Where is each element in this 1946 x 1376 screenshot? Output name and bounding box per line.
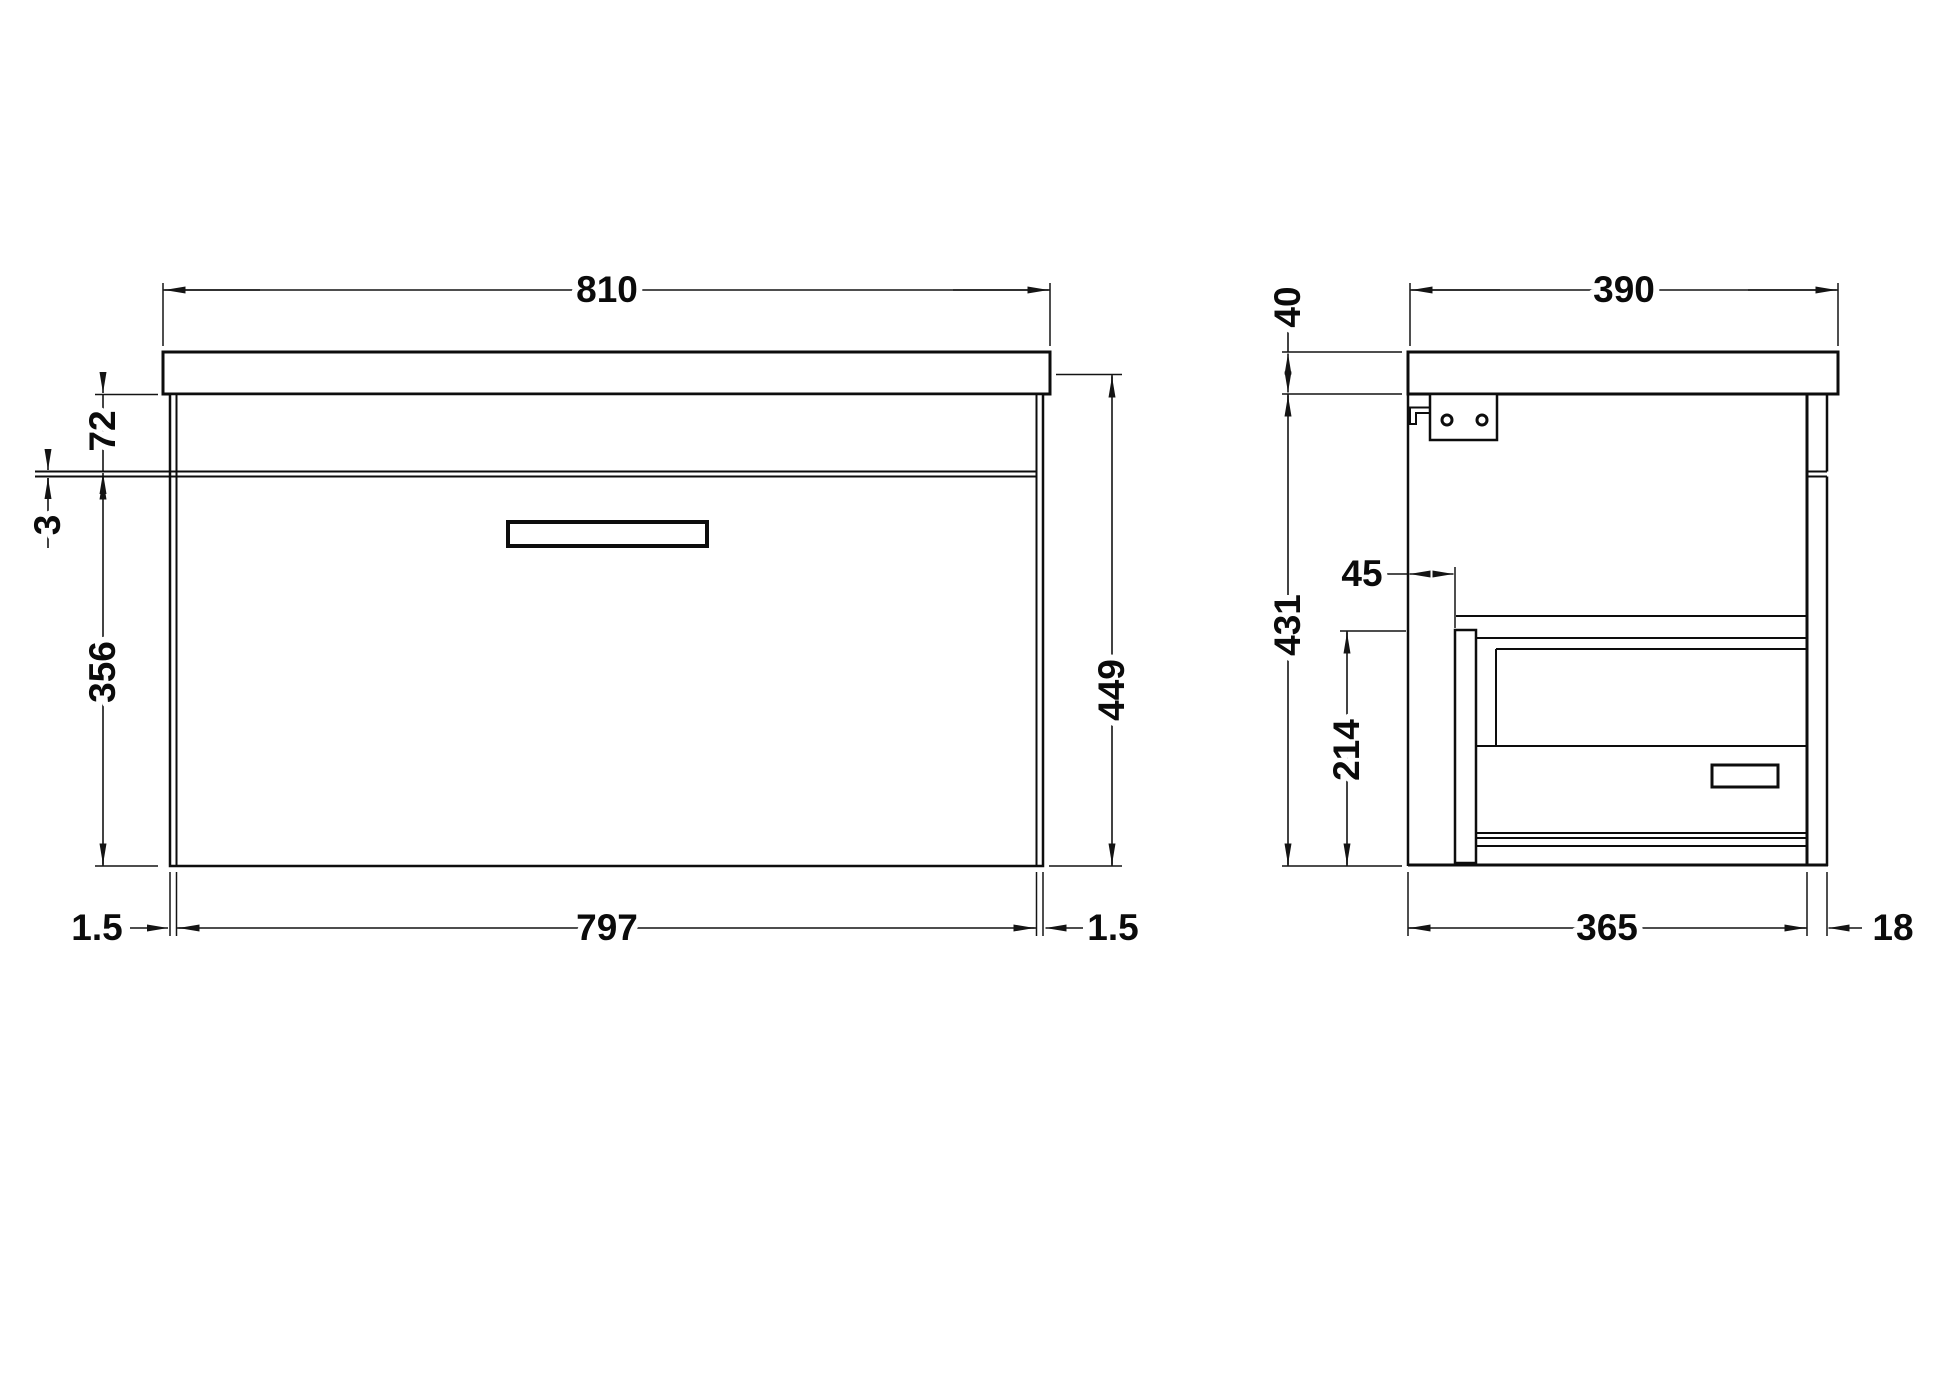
front-view: 810 72 3 356 449 797 1.5 1.5 — [27, 269, 1139, 948]
front-cabinet — [170, 394, 1043, 866]
side-drawer-handle — [1712, 765, 1778, 787]
dim-label-groove-gap: 3 — [27, 515, 68, 536]
dim-label-carcass-depth: 365 — [1576, 907, 1638, 948]
side-countertop — [1408, 352, 1838, 394]
dim-label-front-panel-thickness: 18 — [1872, 907, 1913, 948]
dim-label-back-inset: 45 — [1341, 553, 1382, 594]
drawer-back-panel — [1455, 630, 1476, 863]
bracket-screw-hole-left — [1442, 415, 1452, 425]
front-countertop — [163, 352, 1050, 394]
dim-label-overall-depth: 390 — [1593, 269, 1655, 310]
dim-label-unit-height: 431 — [1267, 594, 1308, 656]
front-drawer-handle — [508, 522, 707, 546]
side-front-strip — [1808, 394, 1827, 866]
side-dim-back-inset — [1385, 567, 1455, 628]
dimension-drawing: 810 72 3 356 449 797 1.5 1.5 — [0, 0, 1946, 1376]
dim-label-overall-height: 449 — [1091, 659, 1132, 721]
dim-label-overall-width: 810 — [576, 269, 638, 310]
front-dim-overall-height — [1049, 375, 1122, 867]
dim-label-drawer-front-width: 797 — [576, 907, 638, 948]
dim-label-top-height: 72 — [82, 410, 123, 451]
dim-label-drawer-front-height: 356 — [82, 641, 123, 703]
side-view: 390 40 431 45 214 365 18 — [1267, 269, 1914, 948]
dim-label-drawer-back-height: 214 — [1326, 719, 1367, 781]
dim-label-side-gap-right: 1.5 — [1087, 907, 1138, 948]
side-drawer-section — [1455, 616, 1807, 863]
bracket-hook — [1410, 408, 1430, 425]
dim-label-side-gap-left: 1.5 — [71, 907, 122, 948]
wall-bracket — [1410, 394, 1497, 440]
technical-drawing-page: 810 72 3 356 449 797 1.5 1.5 — [0, 0, 1946, 1376]
dim-label-worktop-thickness: 40 — [1267, 286, 1308, 327]
bracket-screw-hole-right — [1477, 415, 1487, 425]
